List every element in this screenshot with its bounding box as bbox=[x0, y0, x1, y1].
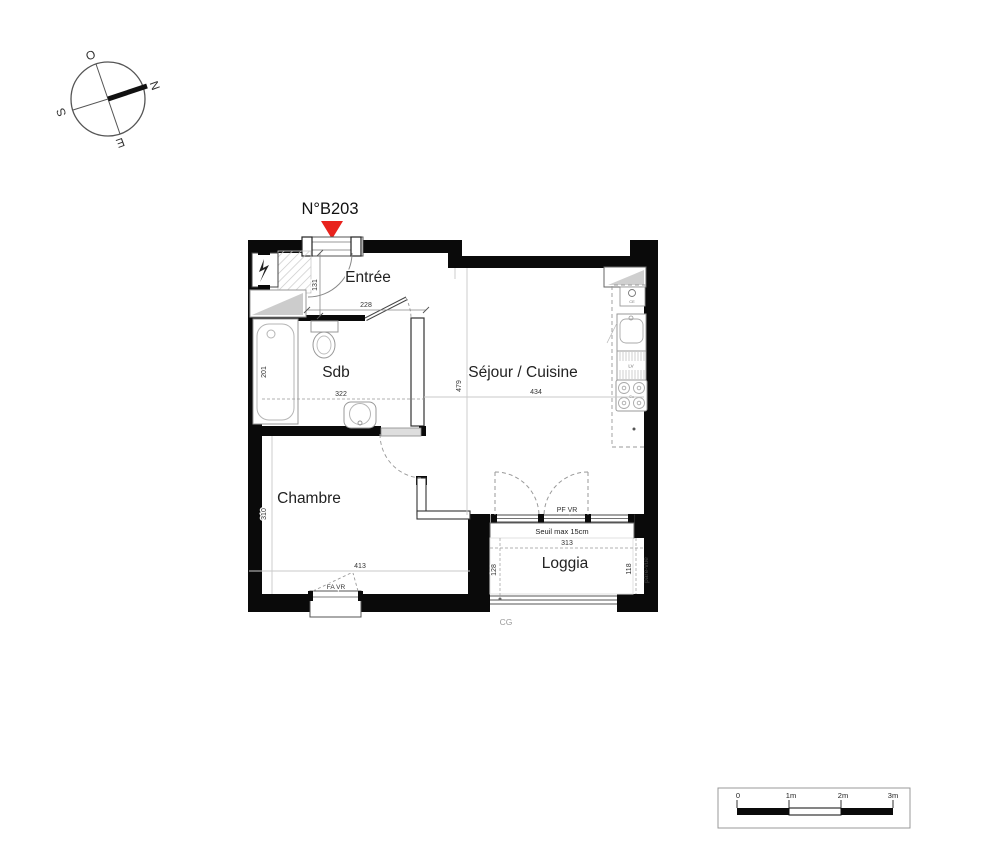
north-needle-icon bbox=[108, 86, 147, 99]
dim-sdb-width: 322 bbox=[335, 391, 347, 398]
dim-sejour-depth: 479 bbox=[456, 380, 463, 392]
scale-tick-1m: 1m bbox=[786, 791, 796, 800]
scale-tick-3m: 3m bbox=[888, 791, 898, 800]
bathtub bbox=[253, 319, 298, 424]
dimension-lines bbox=[249, 250, 644, 601]
cooktop-label: Cu bbox=[629, 394, 634, 399]
sdb-door bbox=[365, 297, 411, 321]
room-label-entree: Entrée bbox=[345, 269, 391, 286]
floor-plan-drawing: O N S E N°B203 bbox=[0, 0, 1000, 857]
dim-bathtub-length: 201 bbox=[261, 366, 268, 378]
scale-tick-0: 0 bbox=[736, 791, 740, 800]
chambre-window bbox=[308, 573, 363, 617]
scale-tick-2m: 2m bbox=[838, 791, 848, 800]
chambre-door bbox=[380, 428, 421, 478]
corner-mark-label: CG bbox=[500, 617, 513, 627]
entrance-marker-icon bbox=[321, 221, 343, 239]
dim-chambre-width: 413 bbox=[354, 563, 366, 570]
loggia-railing bbox=[490, 596, 617, 604]
compass-rose-icon: O N S E bbox=[53, 47, 163, 151]
dim-entree-width: 228 bbox=[360, 302, 372, 309]
dim-sejour-width: 434 bbox=[530, 389, 542, 396]
dim-loggia-right-depth: 118 bbox=[626, 563, 633, 574]
dim-chambre-depth: 310 bbox=[261, 508, 268, 520]
unit-number-label: N°B203 bbox=[301, 200, 358, 218]
loggia-door-label: PF VR bbox=[557, 507, 578, 514]
compass-south-label: S bbox=[53, 106, 69, 118]
toilet-tank bbox=[311, 321, 338, 332]
dim-loggia-depth: 128 bbox=[491, 564, 498, 576]
bathroom-fixtures bbox=[253, 319, 376, 428]
floor-plan-page: O N S E N°B203 bbox=[0, 0, 1000, 857]
kitchen-fixtures: CE LV Cu bbox=[604, 267, 647, 447]
door-swing-arc bbox=[380, 434, 421, 478]
room-label-sejour-cuisine: Séjour / Cuisine bbox=[468, 364, 577, 381]
compass-east-label: E bbox=[114, 135, 126, 151]
compass-north-label: N bbox=[147, 79, 163, 92]
room-label-chambre: Chambre bbox=[277, 490, 341, 507]
privacy-screen-label: pare-vue bbox=[643, 557, 650, 583]
water-heater-label: CE bbox=[629, 299, 635, 304]
door-swing-arc bbox=[406, 298, 411, 317]
dim-loggia-width: 313 bbox=[561, 540, 573, 547]
dim-entree-depth: 131 bbox=[312, 279, 319, 291]
chambre-window-label: FA VR bbox=[327, 584, 346, 591]
compass-west-label: O bbox=[84, 47, 98, 63]
dishwasher-label: LV bbox=[628, 364, 633, 369]
room-label-loggia: Loggia bbox=[542, 555, 589, 572]
threshold-label: Seuil max 15cm bbox=[535, 527, 588, 536]
room-label-sdb: Sdb bbox=[322, 364, 350, 381]
technical-closet bbox=[250, 248, 311, 317]
scale-bar: 0 1m 2m 3m bbox=[718, 788, 910, 828]
